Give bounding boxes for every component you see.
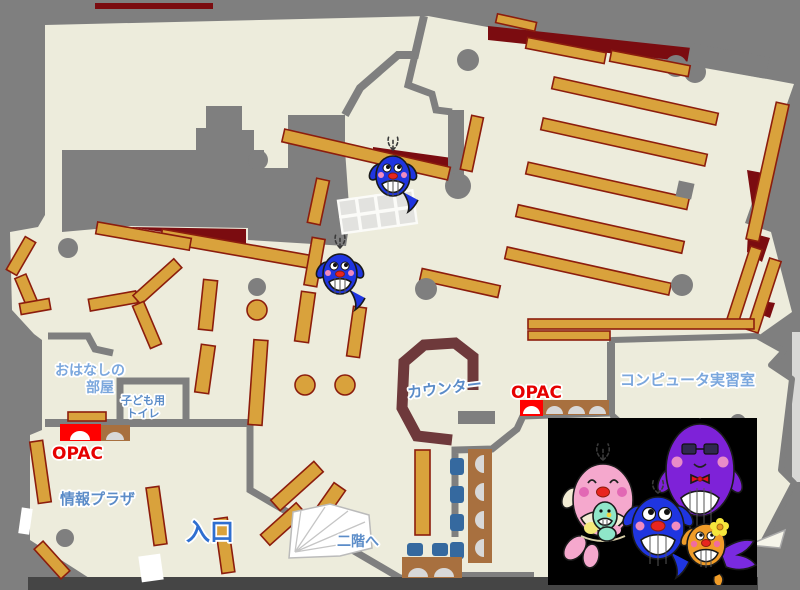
label-story-room-line2: 部屋 (86, 379, 114, 396)
label-entrance: 入口 (186, 518, 234, 546)
whale-family-photo (548, 400, 757, 587)
label-to-second-floor: 二階へ (337, 533, 379, 550)
label-story-room-line1: おはなしの (55, 363, 125, 379)
label-opac-right: OPAC (511, 383, 562, 403)
label-info-plaza: 情報プラザ (60, 490, 135, 508)
library-floor-map: おはなしの 部屋 子ども用 トイレ OPAC 情報プラザ 入口 二階へ カウンタ… (0, 0, 800, 590)
label-computer-room: コンピュータ実習室 (620, 371, 755, 389)
opac-station-left (60, 424, 130, 441)
label-kids-toilet-line2: トイレ (127, 407, 160, 420)
floor-map-canvas: おはなしの 部屋 子ども用 トイレ OPAC 情報プラザ 入口 二階へ カウンタ… (0, 0, 800, 590)
label-opac-left: OPAC (52, 444, 103, 464)
right-edge-strip (792, 332, 800, 482)
label-kids-toilet-line1: 子ども用 (121, 394, 165, 407)
